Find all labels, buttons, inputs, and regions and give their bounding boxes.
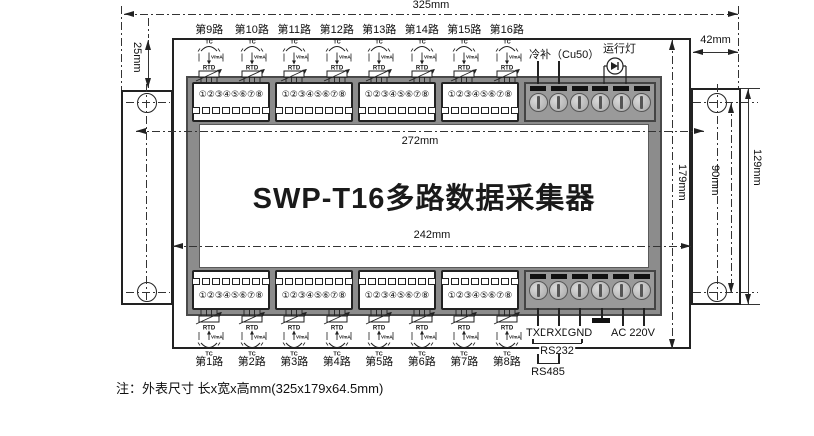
front-panel: ①②③④⑤⑥⑦⑧ ①②③④⑤⑥⑦⑧ ①②③④⑤⑥⑦⑧ ①②③④⑤⑥⑦⑧ SWP-… [186,76,662,316]
cold-junction-label: 冷补（Cu50） [528,46,600,62]
dim-case-height: 179mm [672,40,673,349]
channel-sensor-unit: RTD V/mA TC 第1路 [189,310,229,369]
screw-terminal [591,274,610,306]
channel-label: 第10路 [235,24,269,37]
terminal-bar [551,274,567,279]
svg-text:V/mA: V/mA [466,55,478,60]
screw-terminal [591,86,610,118]
svg-text:V/mA: V/mA [381,55,393,60]
rs485-bracket [537,363,559,364]
channel-sensor-unit: 第16路 TC V/mA RTD [487,24,527,83]
wire [537,61,539,84]
terminal-bar [572,86,588,91]
tc-vma-rtd-sensor-icon: RTD V/mA TC [192,310,226,356]
svg-text:TC: TC [503,40,510,46]
screw-terminal [570,274,589,306]
screw-head-icon [529,93,548,112]
svg-text:V/mA: V/mA [424,55,436,60]
svg-text:V/mA: V/mA [211,335,223,340]
rs232-label: RS232 [539,345,575,357]
screw-head-icon [591,93,610,112]
screw-head-icon [632,93,651,112]
channel-pair: 第15路 TC V/mA RTD 第16路 TC V/mA RTD [443,24,528,84]
channel-sensor-unit: RTD V/mA TC 第3路 [274,310,314,369]
svg-text:V/mA: V/mA [509,335,521,340]
terminal-bar [530,274,546,279]
channel-pair: RTD V/mA TC 第1路 RTD V/mA TC 第2路 [188,310,273,382]
tc-vma-rtd-sensor-icon: RTD V/mA TC [320,310,354,356]
aux-terminal-labels-top: 冷补（Cu50） 运行灯 [528,24,660,84]
screw-head-icon [570,281,589,300]
terminal-numbers: ①②③④⑤⑥⑦⑧ [448,90,513,101]
hole-axis-left [146,84,147,302]
svg-text:RTD: RTD [501,326,514,332]
terminal-slot-row [441,278,519,285]
channel-sensor-unit: 第13路 TC V/mA RTD [359,24,399,83]
comm-terminal-labels: TXD RXD GND AC 220V RS232 RS485 [528,310,660,382]
svg-text:V/mA: V/mA [296,335,308,340]
svg-text:TC: TC [291,40,298,46]
wire [579,308,581,326]
terminal-bar [613,86,629,91]
terminal-numbers: ①②③④⑤⑥⑦⑧ [282,90,347,101]
terminal-bar [530,86,546,91]
channel-pair: 第13路 TC V/mA RTD 第14路 TC V/mA RTD [358,24,443,84]
terminal-slot-row [358,278,436,285]
terminal-slot-row [275,107,353,114]
svg-text:V/mA: V/mA [339,335,351,340]
rs232-bracket [581,339,583,343]
channel-label: 第16路 [490,24,524,37]
screw-terminal [549,86,568,118]
channel-pair: RTD V/mA TC 第5路 RTD V/mA TC 第6路 [358,310,443,382]
wire [558,61,560,84]
terminal-slot-row [192,107,270,114]
hole-axis [126,102,170,103]
tc-vma-rtd-sensor-icon: RTD V/mA TC [447,310,481,356]
tc-vma-rtd-sensor-icon: RTD V/mA TC [277,310,311,356]
svg-text:V/mA: V/mA [339,55,351,60]
run-lamp-label: 运行灯 [602,40,637,56]
svg-text:RTD: RTD [246,326,259,332]
channel-sensor-unit: RTD V/mA TC 第2路 [232,310,272,369]
device-dimension-diagram: 325mm 25mm 42mm 179mm [0,0,814,436]
screw-terminal [570,86,589,118]
screw-terminal [632,274,651,306]
channel-pair: 第9路 TC V/mA RTD 第10路 TC V/mA RTD [188,24,273,84]
dim-front-width: 272mm [136,131,704,132]
terminal-group: ①②③④⑤⑥⑦⑧ [275,82,353,122]
terminal-slot-row [192,278,270,285]
terminal-strip-bottom: ①②③④⑤⑥⑦⑧ ①②③④⑤⑥⑦⑧ ①②③④⑤⑥⑦⑧ ①②③④⑤⑥⑦⑧ [192,270,656,310]
screw-head-icon [612,93,631,112]
channel-label: 第5路 [365,356,393,369]
tc-vma-rtd-sensor-icon: TC V/mA RTD [447,37,481,83]
screw-head-icon [549,281,568,300]
mounting-bracket-left [121,90,173,305]
terminal-numbers: ①②③④⑤⑥⑦⑧ [199,90,264,101]
svg-text:TC: TC [206,40,213,46]
svg-text:RTD: RTD [288,326,301,332]
channel-label: 第8路 [493,356,521,369]
channel-sensor-unit: RTD V/mA TC 第4路 [317,310,357,369]
screw-terminal [549,274,568,306]
tc-vma-rtd-sensor-icon: TC V/mA RTD [320,37,354,83]
tc-vma-rtd-sensor-icon: TC V/mA RTD [362,37,396,83]
channel-sensor-unit: 第11路 TC V/mA RTD [274,24,314,83]
channel-sensor-unit: RTD V/mA TC 第7路 [444,310,484,369]
terminal-bar [551,86,567,91]
channel-label: 第9路 [195,24,223,37]
channel-label: 第2路 [238,356,266,369]
svg-text:RTD: RTD [203,326,216,332]
terminal-numbers: ①②③④⑤⑥⑦⑧ [199,291,264,302]
screw-head-icon [591,281,610,300]
screw-head-icon [632,281,651,300]
svg-text:TC: TC [461,40,468,46]
terminal-group: ①②③④⑤⑥⑦⑧ [441,82,519,122]
svg-text:V/mA: V/mA [509,55,521,60]
top-channels: 第9路 TC V/mA RTD 第10路 TC V/mA RTD [188,24,660,84]
centerline-right [738,6,739,90]
screw-terminal [529,86,548,118]
screw-head-icon [529,281,548,300]
terminal-group: ①②③④⑤⑥⑦⑧ [192,270,270,310]
wire [558,308,560,326]
screw-terminal [612,274,631,306]
channel-pair: RTD V/mA TC 第3路 RTD V/mA TC 第4路 [273,310,358,382]
channel-label: 第12路 [320,24,354,37]
terminal-bar [592,86,608,91]
channel-sensor-unit: RTD V/mA TC 第8路 [487,310,527,369]
centerline-left [121,6,122,92]
terminal-group: ①②③④⑤⑥⑦⑧ [192,82,270,122]
channel-label: 第14路 [405,24,439,37]
tc-vma-rtd-sensor-icon: TC V/mA RTD [277,37,311,83]
channel-label: 第1路 [195,356,223,369]
terminal-group: ①②③④⑤⑥⑦⑧ [358,82,436,122]
dim-top-inset: 25mm [148,40,149,88]
terminal-slot-row [358,107,436,114]
dim-overall-width: 325mm [124,14,738,15]
channel-label: 第7路 [450,356,478,369]
dim-bracket-width: 42mm [693,52,738,53]
dim-bracket-height: 129mm [748,89,749,304]
terminal-group: ①②③④⑤⑥⑦⑧ [358,270,436,310]
tc-vma-rtd-sensor-icon: RTD V/mA TC [490,310,524,356]
terminal-numbers: ①②③④⑤⑥⑦⑧ [282,291,347,302]
dim-window-width: 242mm [173,246,691,247]
terminal-numbers: ①②③④⑤⑥⑦⑧ [448,291,513,302]
channel-sensor-unit: RTD V/mA TC 第6路 [402,310,442,369]
channel-sensor-unit: 第9路 TC V/mA RTD [189,24,229,83]
tc-vma-rtd-sensor-icon: TC V/mA RTD [490,37,524,83]
screw-terminal-block-top [524,82,656,122]
ground-icon [592,318,610,323]
tc-vma-rtd-sensor-icon: TC V/mA RTD [235,37,269,83]
channel-sensor-unit: 第15路 TC V/mA RTD [444,24,484,83]
svg-text:V/mA: V/mA [296,55,308,60]
mounting-hole [137,93,157,113]
ground-icon [601,308,603,318]
wire [643,308,645,326]
svg-text:TC: TC [248,40,255,46]
wire [622,308,624,326]
svg-text:V/mA: V/mA [466,335,478,340]
mounting-bracket-right [691,88,741,305]
terminal-group: ①②③④⑤⑥⑦⑧ [275,270,353,310]
svg-text:V/mA: V/mA [381,335,393,340]
svg-text:V/mA: V/mA [211,55,223,60]
rs232-bracket [532,339,534,343]
screw-terminal-block-bottom [524,270,656,310]
channel-pair: 第11路 TC V/mA RTD 第12路 TC V/mA RTD [273,24,358,84]
channel-label: 第6路 [408,356,436,369]
wire [537,308,539,326]
screw-head-icon [549,93,568,112]
svg-text:RTD: RTD [331,326,344,332]
hole-axis [126,292,170,293]
terminal-bar [634,86,650,91]
rs485-label: RS485 [530,366,566,378]
terminal-bar [592,274,608,279]
terminal-bar [634,274,650,279]
channel-label: 第4路 [323,356,351,369]
channel-label: 第3路 [280,356,308,369]
gnd-label: GND [567,327,593,339]
tc-vma-rtd-sensor-icon: TC V/mA RTD [405,37,439,83]
terminal-numbers: ①②③④⑤⑥⑦⑧ [365,291,430,302]
dim-hole-spacing: 90mm [731,103,732,293]
extension-line [148,18,149,38]
run-lamp-led-icon [600,56,630,84]
channel-label: 第13路 [362,24,396,37]
tc-vma-rtd-sensor-icon: RTD V/mA TC [405,310,439,356]
terminal-slot-row [441,107,519,114]
screw-terminal [612,86,631,118]
terminal-strip-top: ①②③④⑤⑥⑦⑧ ①②③④⑤⑥⑦⑧ ①②③④⑤⑥⑦⑧ ①②③④⑤⑥⑦⑧ [192,82,656,122]
channel-sensor-unit: 第10路 TC V/mA RTD [232,24,272,83]
svg-text:RTD: RTD [373,326,386,332]
tc-vma-rtd-sensor-icon: TC V/mA RTD [192,37,226,83]
screw-terminal [529,274,548,306]
channel-pair: RTD V/mA TC 第7路 RTD V/mA TC 第8路 [443,310,528,382]
tc-vma-rtd-sensor-icon: RTD V/mA TC [362,310,396,356]
terminal-slot-row [275,278,353,285]
tc-vma-rtd-sensor-icon: RTD V/mA TC [235,310,269,356]
screw-terminal [632,86,651,118]
svg-text:RTD: RTD [416,326,429,332]
extension-line [741,304,760,305]
svg-text:TC: TC [333,40,340,46]
svg-text:RTD: RTD [458,326,471,332]
svg-text:TC: TC [418,40,425,46]
svg-text:V/mA: V/mA [424,335,436,340]
channel-label: 第11路 [278,24,311,37]
rs232-bracket [532,343,582,344]
svg-text:V/mA: V/mA [254,335,266,340]
terminal-numbers: ①②③④⑤⑥⑦⑧ [365,90,430,101]
bottom-channels: RTD V/mA TC 第1路 RTD V/mA TC 第2路 [188,310,660,382]
svg-text:V/mA: V/mA [254,55,266,60]
terminal-group: ①②③④⑤⑥⑦⑧ [441,270,519,310]
channel-sensor-unit: 第12路 TC V/mA RTD [317,24,357,83]
screw-head-icon [612,281,631,300]
ac-power-label: AC 220V [610,327,656,339]
terminal-bar [572,274,588,279]
screw-head-icon [570,93,589,112]
terminal-bar [613,274,629,279]
channel-sensor-unit: 第14路 TC V/mA RTD [402,24,442,83]
channel-sensor-unit: RTD V/mA TC 第5路 [359,310,399,369]
device-title: SWP-T16多路数据采集器 [253,175,596,217]
svg-text:TC: TC [376,40,383,46]
channel-label: 第15路 [447,24,481,37]
